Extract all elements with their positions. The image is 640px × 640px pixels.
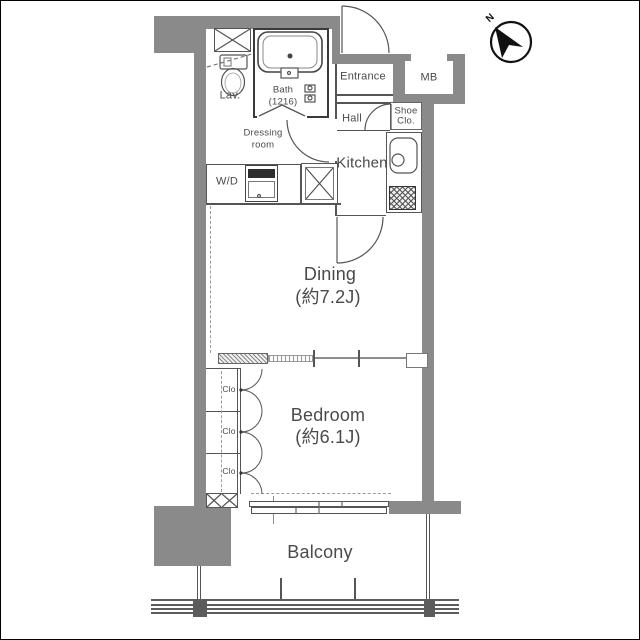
label-closet-2: Clo [222,427,235,436]
pipe-space-top [214,28,251,52]
compass-north-icon: N [484,12,531,62]
partition-door-stack [218,353,268,364]
balcony-post-1 [280,578,282,599]
label-kitchen: Kitchen [336,156,387,171]
lavatory-door-icon [207,54,252,67]
partition-tick-2 [358,350,360,367]
bath-door-opening [257,114,307,119]
wall-bottom-left-block [154,506,231,566]
dining-left-dashed [210,206,211,353]
wall-mb-tab-left [393,54,411,61]
wall-entrance-top [332,54,393,64]
closet-divider-2 [206,453,241,454]
compass-north-label: N [484,12,497,25]
label-bath-1: Bath [273,85,293,95]
entrance-step-line-2 [335,102,393,104]
dressing-door-icon [287,120,329,162]
railing-line-4 [151,612,459,614]
balcony-window-inner [251,507,387,514]
label-dressing-2: room [252,140,274,150]
wall-mb-tab-right [447,54,465,61]
label-bath-2: (1216) [269,97,298,107]
label-dining-2: (約7.2J) [295,288,360,306]
washer-lid [248,169,275,178]
balcony-right-edge [426,514,430,599]
label-dining-1: Dining [304,265,356,283]
label-washer-dryer: W/D [216,177,238,188]
label-bedroom-1: Bedroom [291,406,365,424]
label-dressing-1: Dressing [243,128,282,138]
stove [389,186,416,210]
duct-box [406,353,428,368]
label-closet-3: Clo [222,467,235,476]
label-bedroom-2: (約6.1J) [295,428,360,446]
closet-door-arcs-icon [241,369,262,494]
pipe-space-bottom [206,493,238,508]
wall-top-left-block [154,16,206,53]
dressing-hall-wall-upper [335,64,337,119]
closet-divider-1 [206,411,241,412]
floor-plan: N Entrance MB Shoe Clo. Hall Kitchen Lav… [0,0,640,640]
label-entrance: Entrance [340,72,386,83]
railing-line-2 [151,604,459,606]
label-closet-1: Clo [222,385,235,394]
wall-right-stem [422,104,434,131]
balcony-left-edge [197,566,201,599]
railing-line-3 [151,608,459,610]
entrance-door-icon [342,6,389,53]
label-hall: Hall [342,114,362,125]
wall-bottom-right-stub [389,501,461,514]
washer-drum [248,181,275,198]
partition-tick-1 [313,350,315,367]
railing-line-1 [151,599,459,601]
hall-kitchen-line [337,130,390,131]
label-lavatory: Lav. [220,91,241,102]
bedroom-window-dashed [251,493,391,494]
closet-top-line [206,368,241,369]
label-balcony: Balcony [287,543,352,561]
shoe-closet-door-icon [365,104,391,130]
wall-left-main [194,53,206,506]
entrance-step-line-1 [335,94,393,96]
kitchen-door-icon [337,217,383,263]
pipe-space-mid-inner [305,167,334,200]
closet-front-line [237,369,241,494]
label-shoe-closet-2: Clo. [397,116,415,126]
partition-door-track [268,355,313,362]
kitchen-threshold [337,215,386,216]
label-meter-box: MB [421,73,438,84]
wall-right-main [422,131,434,514]
balcony-post-2 [354,578,356,599]
